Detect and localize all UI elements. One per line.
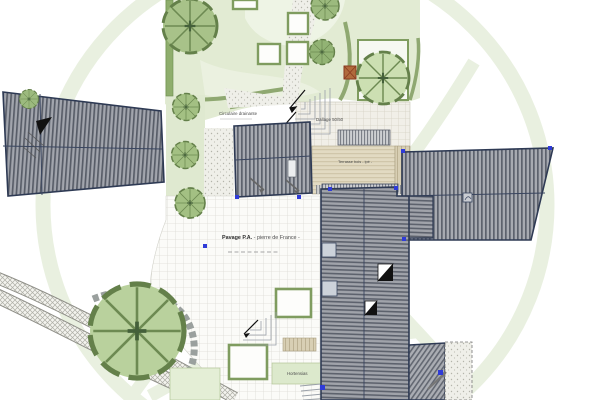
landscape-plan: Circulaire drainante Dallage 50/50 Terra… xyxy=(0,0,600,400)
tree-symbol xyxy=(311,0,339,20)
building-main-roof xyxy=(321,184,409,400)
planter-box xyxy=(229,345,267,379)
label-hortensias: Hortensias xyxy=(287,371,308,376)
tree-symbol xyxy=(175,188,205,218)
roof-vent xyxy=(288,160,296,177)
dallage-area xyxy=(296,102,410,148)
gravel-side-path xyxy=(204,128,234,196)
gravel-patch xyxy=(445,342,472,400)
roof-window xyxy=(322,243,336,257)
step-edge-hatch xyxy=(338,130,390,145)
label-dallage: Dallage 50/50 xyxy=(316,117,344,122)
brasero-icon xyxy=(344,66,356,79)
tree-symbol xyxy=(163,0,217,53)
green-bed-corner xyxy=(170,368,220,400)
wood-step xyxy=(283,338,316,351)
tree-symbol-large xyxy=(90,284,184,378)
tree-symbol xyxy=(357,52,409,104)
tree-symbol xyxy=(172,142,199,169)
landscape-plan-canvas: Circulaire drainante Dallage 50/50 Terra… xyxy=(0,0,600,400)
roof-window xyxy=(322,281,337,296)
tree-symbol xyxy=(173,94,200,121)
planter-box xyxy=(276,289,311,317)
label-circulaire: Circulaire drainante xyxy=(219,111,258,116)
tree-symbol xyxy=(310,40,335,65)
label-pavage: Pavage P.A. - pierre de France - xyxy=(222,235,300,241)
chimney-icon xyxy=(463,193,472,202)
slope-triangle-icon xyxy=(365,301,377,315)
slope-triangle-icon xyxy=(378,264,393,281)
label-terrasse: Terrasse bois - ipé - xyxy=(338,159,373,164)
shrub-symbol xyxy=(20,90,39,109)
building-garage-roof xyxy=(234,122,312,197)
